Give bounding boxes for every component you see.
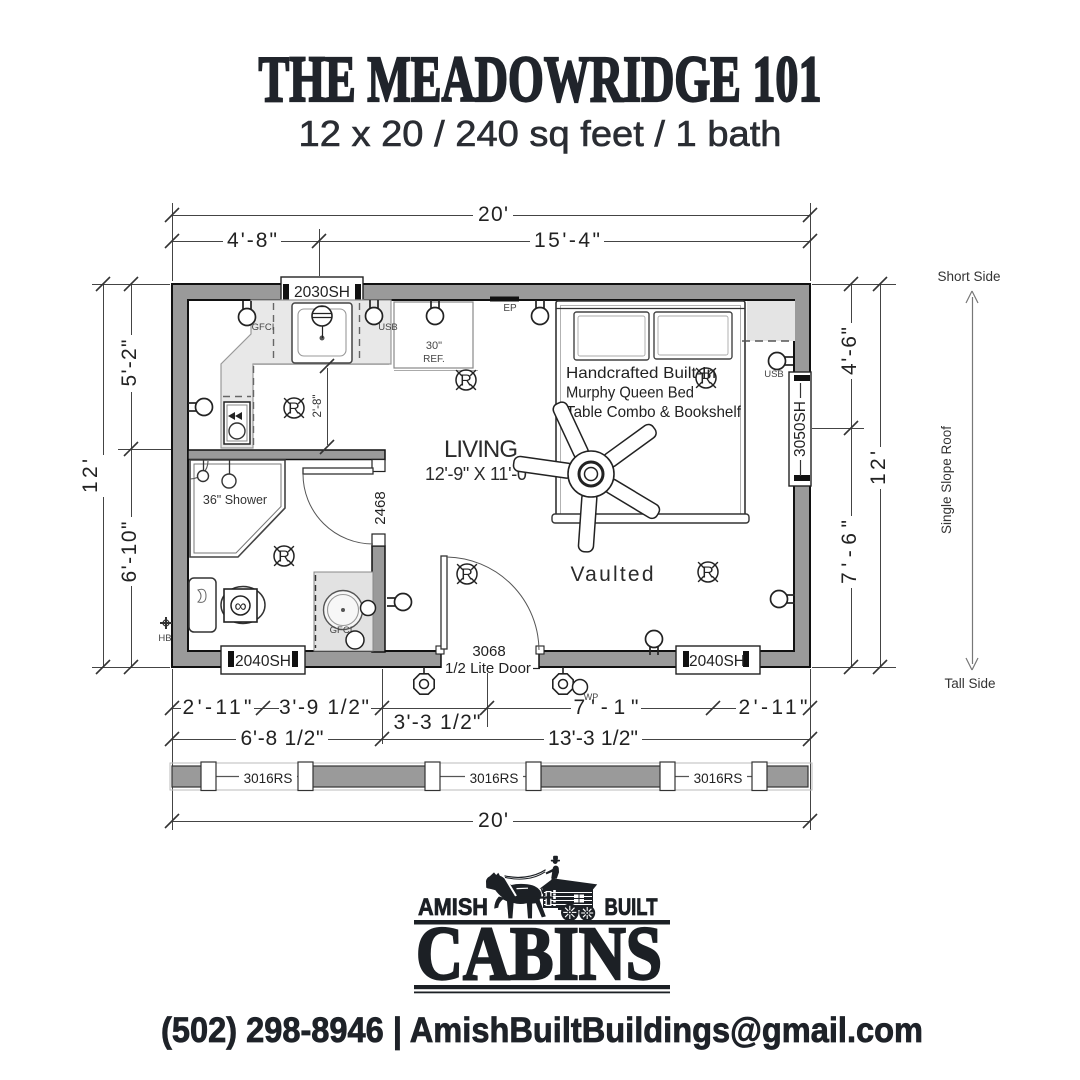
svg-text:Murphy Queen Bed: Murphy Queen Bed — [566, 385, 694, 402]
svg-text:∞: ∞ — [234, 597, 246, 616]
svg-text:2468: 2468 — [372, 491, 389, 524]
svg-text:13'-3 1/2": 13'-3 1/2" — [548, 727, 638, 750]
svg-text:GFCI: GFCI — [252, 322, 275, 333]
svg-text:3016RS: 3016RS — [694, 771, 743, 786]
svg-text:R: R — [288, 401, 300, 418]
svg-text:THE MEADOWRIDGE 101: THE MEADOWRIDGE 101 — [259, 43, 822, 116]
svg-text:2040SH: 2040SH — [235, 653, 291, 670]
svg-text:20': 20' — [478, 809, 508, 832]
svg-text:2'-8": 2'-8" — [312, 395, 324, 418]
svg-text:LIVING: LIVING — [444, 436, 518, 463]
svg-text:Single Slope Roof: Single Slope Roof — [939, 426, 954, 534]
svg-text:Short Side: Short Side — [937, 269, 1000, 284]
svg-text:4'-6": 4'-6" — [838, 327, 861, 375]
svg-text:3'-9 1/2": 3'-9 1/2" — [279, 696, 369, 719]
svg-text:20': 20' — [478, 203, 508, 226]
svg-text:5'-2": 5'-2" — [118, 340, 141, 387]
svg-text:4'-8": 4'-8" — [227, 229, 277, 252]
svg-text:3016RS: 3016RS — [244, 771, 293, 786]
svg-text:WP: WP — [584, 692, 599, 702]
svg-text:USB: USB — [378, 322, 398, 333]
svg-text:REF.: REF. — [423, 354, 445, 365]
svg-text:CABINS: CABINS — [416, 912, 662, 996]
svg-text:6'-8 1/2": 6'-8 1/2" — [241, 727, 324, 750]
svg-text:Handcrafted Built-In: Handcrafted Built-In — [566, 365, 716, 382]
svg-text:R: R — [702, 565, 714, 582]
svg-text:6'-10": 6'-10" — [118, 522, 141, 583]
svg-text:3016RS: 3016RS — [470, 771, 519, 786]
svg-text:(502) 298-8946 | AmishBuiltBui: (502) 298-8946 | AmishBuiltBuildings@gma… — [161, 1011, 923, 1050]
svg-text:Table Combo & Bookshelf: Table Combo & Bookshelf — [566, 404, 742, 421]
svg-text:12 x 20 / 240 sq feet / 1 bath: 12 x 20 / 240 sq feet / 1 bath — [299, 113, 782, 154]
svg-text:36" Shower: 36" Shower — [203, 493, 267, 507]
svg-text:USB: USB — [764, 369, 784, 380]
svg-text:3068: 3068 — [472, 643, 505, 660]
svg-text:3'-3 1/2": 3'-3 1/2" — [394, 711, 481, 734]
svg-text:2030SH: 2030SH — [294, 284, 350, 301]
svg-text:R: R — [278, 549, 290, 566]
svg-text:3050SH: 3050SH — [792, 401, 809, 457]
svg-text:Vaulted: Vaulted — [571, 563, 654, 586]
svg-text:R: R — [461, 567, 473, 584]
svg-text:R: R — [460, 373, 472, 390]
svg-text:EP: EP — [503, 303, 517, 314]
svg-text:R: R — [700, 371, 712, 388]
svg-text:30": 30" — [426, 340, 442, 352]
svg-text:Tall Side: Tall Side — [944, 676, 995, 691]
svg-text:1/2 Lite Door: 1/2 Lite Door — [445, 660, 531, 677]
svg-text:HB: HB — [158, 633, 171, 644]
svg-text:2040SH: 2040SH — [689, 653, 745, 670]
